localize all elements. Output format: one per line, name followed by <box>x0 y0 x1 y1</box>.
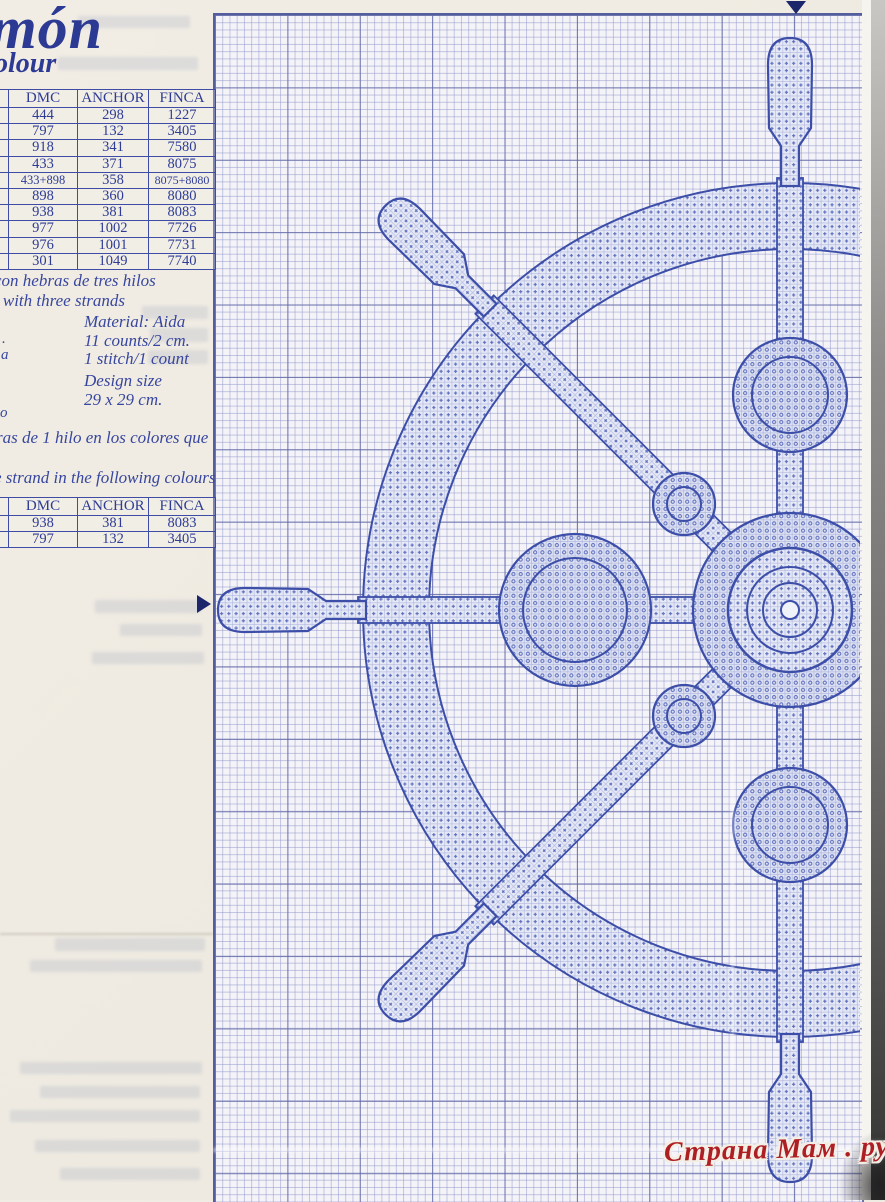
chart-center-marker-down-icon <box>786 1 806 14</box>
backstitch-key-table: DMC ANCHOR FINCA 9383818083 7971323405 <box>0 497 216 548</box>
margin-fragment: o <box>0 405 8 422</box>
anchor-header: ANCHOR <box>78 498 149 516</box>
table-row: 97610017731 <box>0 237 216 253</box>
margin-fragment: a <box>1 347 9 364</box>
margin-fragment: . <box>2 331 6 348</box>
design-size-label: Design size <box>84 371 162 391</box>
symbol-column-header <box>0 498 9 516</box>
show-through-text <box>40 1086 200 1098</box>
show-through-text <box>55 938 205 951</box>
table-row: 9183417580 <box>0 140 216 156</box>
table-row: 4442981227 <box>0 108 216 124</box>
show-through-text <box>60 1168 200 1180</box>
design-size-value: 29 x 29 cm. <box>84 390 162 410</box>
finca-header: FINCA <box>149 498 216 516</box>
thread-key-table: DMC ANCHOR FINCA 4442981227 7971323405 9… <box>0 89 216 270</box>
paper-crease <box>0 933 213 935</box>
count-line-2: 1 stitch/1 count <box>84 349 189 369</box>
show-through-text <box>120 624 202 636</box>
site-watermark: Страна Мам . ру <box>664 1131 885 1169</box>
show-through-text <box>35 1140 200 1152</box>
dmc-header: DMC <box>9 498 78 516</box>
backstitch-note-english: e strand in the following colours <box>0 468 215 488</box>
anchor-header: ANCHOR <box>78 90 149 108</box>
table-header-row: DMC ANCHOR FINCA <box>0 498 216 516</box>
paper-crease <box>731 740 734 1070</box>
table-row: 433+8983588075+8080 <box>0 172 216 188</box>
table-row: 8983608080 <box>0 189 216 205</box>
show-through-text <box>92 652 204 664</box>
strands-note-spanish: con hebras de tres hilos <box>0 271 156 291</box>
ship-wheel-pattern <box>213 13 860 1200</box>
table-row: 9383818083 <box>0 205 216 221</box>
table-row: 7971323405 <box>0 124 216 140</box>
scanned-cross-stitch-pattern-page: { "page": { "title_fragment": "món", "he… <box>0 0 885 1200</box>
table-row: 7971323405 <box>0 532 216 548</box>
page-edge <box>862 0 871 1200</box>
scan-shadow-edge <box>871 0 885 1200</box>
table-header-row: DMC ANCHOR FINCA <box>0 90 216 108</box>
show-through-text <box>10 1110 200 1122</box>
table-row: 30110497740 <box>0 253 216 269</box>
strands-note-english: s with three strands <box>0 291 125 311</box>
show-through-text <box>30 960 202 972</box>
backstitch-note-spanish: ras de 1 hilo en los colores que <box>0 428 208 448</box>
table-row: 4333718075 <box>0 156 216 172</box>
count-line-1: 11 counts/2 cm. <box>84 331 190 351</box>
colour-heading-fragment: olour <box>0 48 56 80</box>
symbol-column-header <box>0 90 9 108</box>
material-line: Material: Aida <box>84 312 185 332</box>
table-row: 97710027726 <box>0 221 216 237</box>
finca-header: FINCA <box>149 90 216 108</box>
chart-center-marker-right-icon <box>197 595 211 613</box>
show-through-text <box>95 600 200 613</box>
dmc-header: DMC <box>9 90 78 108</box>
show-through-text <box>20 1062 202 1074</box>
table-row: 9383818083 <box>0 516 216 532</box>
wheel-drawing <box>218 38 860 1182</box>
